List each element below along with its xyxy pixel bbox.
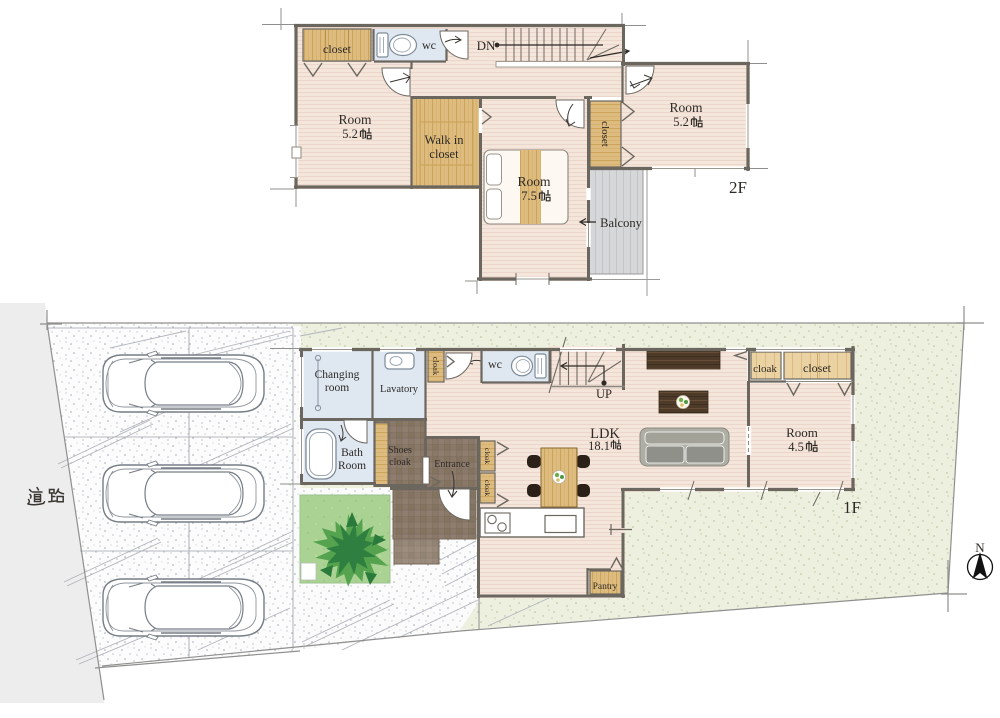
svg-text:cloak: cloak xyxy=(389,457,411,468)
svg-text:closet: closet xyxy=(599,121,611,147)
svg-text:Room: Room xyxy=(338,112,372,127)
svg-text:cloak: cloak xyxy=(483,480,492,496)
svg-text:Room: Room xyxy=(338,460,366,472)
svg-text:Lavatory: Lavatory xyxy=(380,384,419,395)
svg-text:closet: closet xyxy=(323,42,352,56)
svg-text:18.1: 18.1 xyxy=(588,439,610,453)
svg-text:Bath: Bath xyxy=(341,447,363,459)
svg-text:UP: UP xyxy=(596,387,612,401)
svg-text:Room: Room xyxy=(786,425,818,440)
svg-text:Changing: Changing xyxy=(315,369,360,381)
svg-text:DN: DN xyxy=(477,38,496,53)
svg-text:cloak: cloak xyxy=(753,363,777,375)
svg-text:wc: wc xyxy=(422,38,436,52)
svg-text:N: N xyxy=(975,540,985,555)
svg-text:Walk in: Walk in xyxy=(425,133,465,147)
svg-text:2F: 2F xyxy=(729,178,747,197)
svg-text:Entrance: Entrance xyxy=(434,459,470,470)
svg-text:room: room xyxy=(325,382,349,394)
svg-text:7.5: 7.5 xyxy=(521,189,537,203)
svg-text:Room: Room xyxy=(517,174,551,189)
svg-text:Pantry: Pantry xyxy=(593,582,618,592)
svg-text:Shoes: Shoes xyxy=(388,445,412,456)
svg-text:Room: Room xyxy=(669,100,703,115)
svg-text:4.5: 4.5 xyxy=(788,440,804,454)
svg-text:cloak: cloak xyxy=(431,357,441,376)
svg-text:1F: 1F xyxy=(843,498,861,517)
svg-text:Balcony: Balcony xyxy=(600,216,642,230)
svg-text:5.2: 5.2 xyxy=(342,127,358,141)
svg-text:closet: closet xyxy=(429,147,459,161)
svg-text:5.2: 5.2 xyxy=(673,115,689,129)
svg-text:wc: wc xyxy=(488,357,502,371)
svg-text:closet: closet xyxy=(803,361,832,375)
svg-text:cloak: cloak xyxy=(483,448,492,464)
